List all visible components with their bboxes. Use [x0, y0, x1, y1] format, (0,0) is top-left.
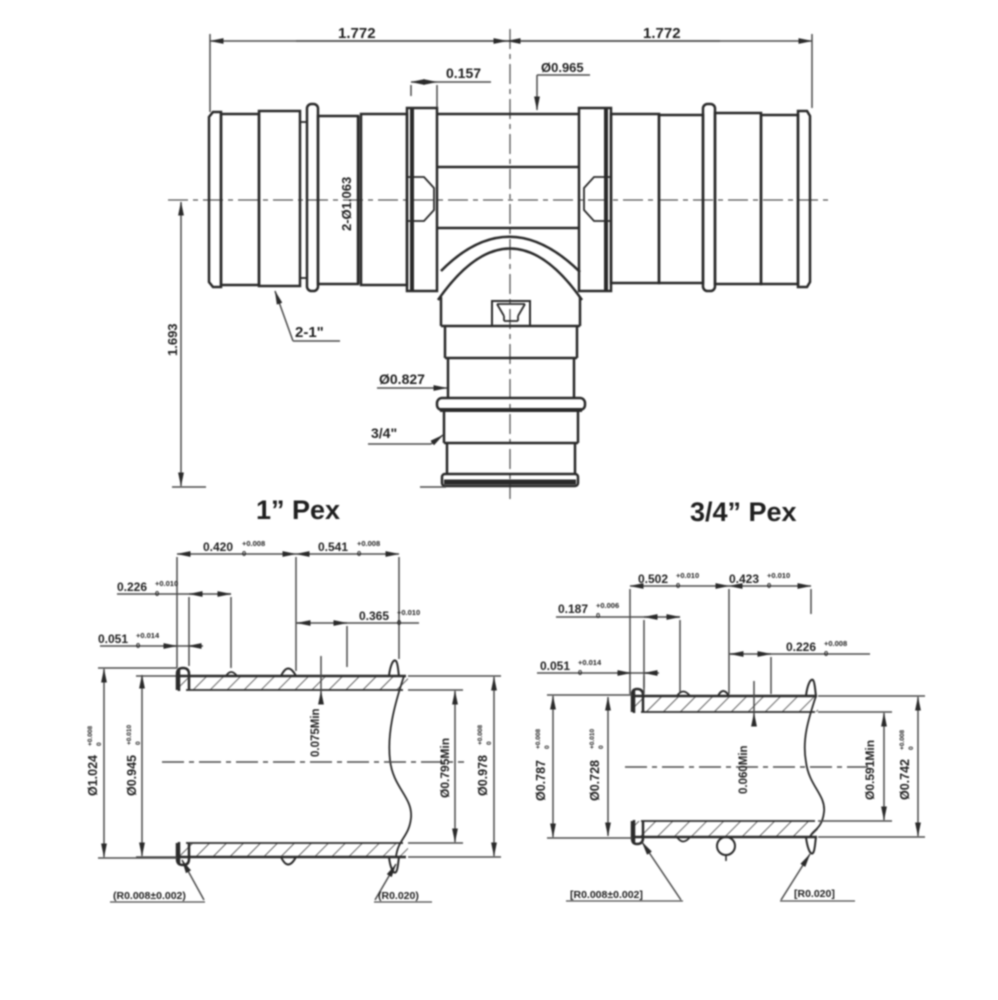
svg-text:0.157: 0.157: [446, 65, 481, 81]
svg-text:0: 0: [767, 581, 771, 590]
svg-text:0: 0: [242, 549, 246, 558]
svg-text:Ø0.978: Ø0.978: [476, 755, 490, 796]
svg-text:Ø0.591Min: Ø0.591Min: [863, 740, 877, 800]
svg-text:0.365: 0.365: [359, 609, 389, 623]
svg-text:+0.014: +0.014: [578, 658, 602, 667]
svg-text:+0.008: +0.008: [824, 639, 847, 648]
svg-text:0.420: 0.420: [203, 540, 233, 554]
svg-text:3/4” Pex: 3/4” Pex: [690, 497, 797, 527]
svg-text:0: 0: [544, 745, 551, 749]
svg-text:0.051: 0.051: [98, 632, 128, 646]
svg-text:0: 0: [357, 549, 361, 558]
svg-text:+0.008: +0.008: [242, 539, 265, 548]
svg-text:Ø0.965: Ø0.965: [541, 60, 584, 75]
svg-text:+0.006: +0.006: [596, 601, 619, 610]
svg-text:[R0.008±0.002]: [R0.008±0.002]: [570, 889, 643, 901]
svg-text:0: 0: [135, 741, 142, 745]
svg-text:+0.014: +0.014: [136, 631, 160, 640]
svg-text:2-Ø1.063: 2-Ø1.063: [339, 177, 354, 231]
svg-text:(R0.020): (R0.020): [378, 890, 419, 902]
svg-text:1” Pex: 1” Pex: [256, 495, 340, 525]
svg-text:0.541: 0.541: [318, 540, 348, 554]
svg-text:0.226: 0.226: [117, 580, 147, 594]
svg-text:0.187: 0.187: [558, 602, 588, 616]
svg-text:+0.008: +0.008: [899, 730, 906, 750]
svg-text:(R0.008±0.002): (R0.008±0.002): [113, 890, 186, 902]
svg-text:2-1": 2-1": [295, 324, 324, 341]
svg-text:3/4": 3/4": [371, 425, 397, 441]
svg-text:+0.008: +0.008: [535, 729, 542, 749]
svg-text:+0.008: +0.008: [357, 539, 380, 548]
svg-text:0: 0: [824, 649, 828, 658]
svg-text:+0.010: +0.010: [155, 579, 178, 588]
svg-text:Ø0.795Min: Ø0.795Min: [438, 738, 452, 798]
svg-text:0.060Min: 0.060Min: [738, 745, 750, 794]
svg-text:[R0.020]: [R0.020]: [794, 888, 835, 900]
svg-text:0: 0: [136, 641, 140, 650]
svg-text:0: 0: [397, 618, 401, 627]
svg-text:0: 0: [96, 742, 103, 746]
svg-text:0.423: 0.423: [729, 572, 759, 586]
svg-text:0: 0: [155, 589, 159, 598]
svg-text:1.693: 1.693: [165, 323, 180, 356]
svg-text:0.075Min: 0.075Min: [310, 708, 322, 757]
svg-text:0.502: 0.502: [638, 572, 668, 586]
svg-text:Ø0.728: Ø0.728: [588, 760, 602, 801]
svg-text:+0.010: +0.010: [397, 608, 420, 617]
svg-text:Ø0.742: Ø0.742: [898, 759, 912, 800]
svg-text:+0.008: +0.008: [477, 725, 484, 745]
svg-text:0: 0: [578, 668, 582, 677]
svg-text:+0.010: +0.010: [126, 725, 133, 745]
svg-text:0: 0: [486, 741, 493, 745]
svg-text:Ø1.024: Ø1.024: [86, 755, 100, 796]
svg-text:+0.010: +0.010: [676, 571, 699, 580]
svg-text:0: 0: [676, 581, 680, 590]
svg-text:0: 0: [596, 611, 600, 620]
svg-text:0: 0: [908, 746, 915, 750]
svg-text:+0.010: +0.010: [589, 729, 596, 749]
svg-text:Ø0.827: Ø0.827: [379, 371, 425, 387]
svg-text:+0.010: +0.010: [767, 571, 790, 580]
svg-text:1.772: 1.772: [643, 25, 681, 42]
svg-text:0.051: 0.051: [540, 659, 570, 673]
svg-text:+0.008: +0.008: [87, 726, 94, 746]
svg-text:0: 0: [598, 745, 605, 749]
svg-text:1.772: 1.772: [338, 25, 376, 42]
svg-text:Ø0.787: Ø0.787: [534, 760, 548, 801]
svg-text:0.226: 0.226: [786, 640, 816, 654]
svg-text:Ø0.945: Ø0.945: [125, 755, 139, 796]
